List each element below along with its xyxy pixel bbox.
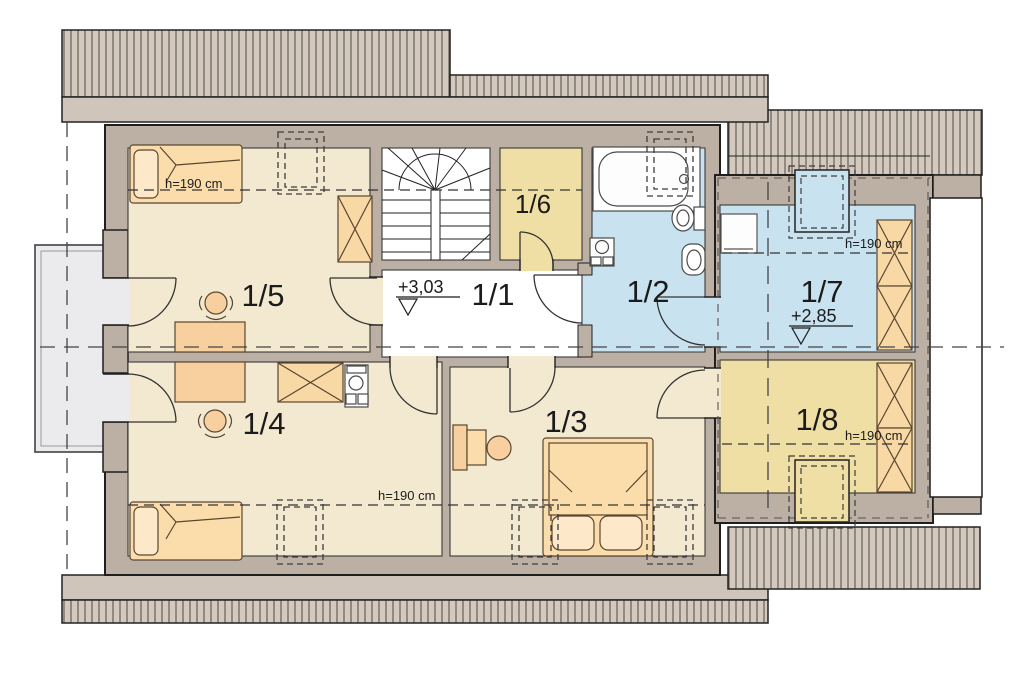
headroom-label-1-4: h=190 cm	[378, 488, 435, 503]
wardrobe-1-5	[338, 196, 372, 262]
washbasin-1-4	[345, 365, 368, 407]
annex-wall-se	[933, 496, 981, 514]
headroom-label-1-8: h=190 cm	[845, 428, 902, 443]
bed-single-1-4	[130, 502, 242, 560]
attic-floor-plan: 1/1 1/2 1/3 1/4 1/5 1/6 1/7 1/8 +3,03 +2…	[0, 0, 1024, 688]
pillar	[103, 325, 128, 373]
label-room-1-7: 1/7	[800, 274, 843, 309]
roof-hatch-top-right	[450, 75, 768, 97]
floor-plan-page: 1/1 1/2 1/3 1/4 1/5 1/6 1/7 1/8 +3,03 +2…	[0, 0, 1024, 688]
eave-band-bottom	[62, 575, 768, 600]
label-room-1-6: 1/6	[515, 189, 551, 219]
label-room-1-1: 1/1	[471, 277, 514, 312]
svg-text:+3,03: +3,03	[398, 277, 444, 297]
label-room-1-3: 1/3	[544, 404, 587, 439]
headroom-label-1-7: h=190 cm	[845, 236, 902, 251]
dormer-1-7	[789, 166, 855, 238]
label-room-1-2: 1/2	[626, 274, 669, 309]
bed-double-1-3	[543, 438, 653, 556]
pillar	[103, 230, 128, 278]
dormer-1-8	[789, 456, 855, 528]
wardrobe-1-4	[278, 363, 343, 402]
label-room-1-4: 1/4	[242, 406, 285, 441]
toilet	[672, 205, 705, 231]
label-room-1-8: 1/8	[795, 402, 838, 437]
eave-band-top	[62, 97, 768, 122]
bed-single-1-5	[130, 145, 242, 203]
svg-text:+2,85: +2,85	[791, 306, 837, 326]
headroom-label-1-5: h=190 cm	[165, 176, 222, 191]
roof-hatch-top-left	[62, 30, 450, 97]
roof-hatch-annex-bottom	[728, 527, 980, 589]
bidet	[682, 244, 705, 275]
washbasin-1-2	[590, 238, 614, 266]
pillar	[103, 422, 128, 472]
roof-hatch-bottom	[62, 600, 768, 623]
annex-wall-ne	[933, 175, 981, 199]
cabinet-1-7	[721, 214, 757, 253]
label-room-1-5: 1/5	[241, 278, 284, 313]
